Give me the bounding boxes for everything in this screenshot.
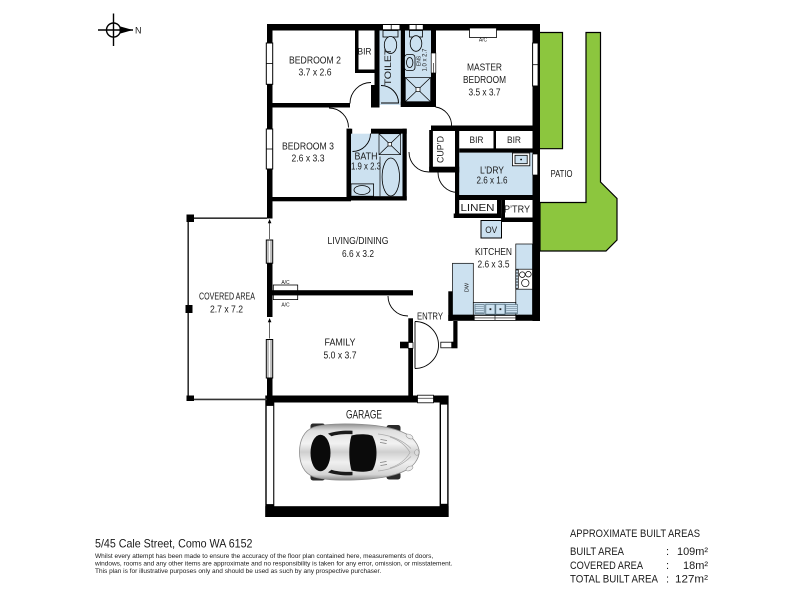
svg-text:5.0 x 3.7: 5.0 x 3.7 (324, 351, 357, 362)
svg-text:COVERED AREA: COVERED AREA (199, 292, 255, 303)
svg-text:BEDROOM: BEDROOM (463, 75, 506, 86)
svg-text:1.9 x 2.3: 1.9 x 2.3 (351, 162, 381, 173)
svg-text:2.6 x 3.3: 2.6 x 3.3 (292, 154, 325, 165)
svg-text:5/45 Cale Street, Como WA 6152: 5/45 Cale Street, Como WA 6152 (95, 537, 253, 551)
svg-text:1.0 x 2.7: 1.0 x 2.7 (423, 48, 429, 72)
svg-text:18m²: 18m² (683, 560, 708, 572)
svg-text:BEDROOM 2: BEDROOM 2 (289, 56, 341, 67)
svg-text:APPROXIMATE BUILT AREAS: APPROXIMATE BUILT AREAS (570, 528, 700, 540)
svg-text::: : (666, 546, 669, 558)
svg-text:windows, rooms and any other i: windows, rooms and any other items are a… (94, 561, 452, 568)
svg-text:LINEN: LINEN (461, 203, 495, 214)
svg-text:A/C: A/C (281, 303, 290, 309)
svg-text:DW: DW (465, 282, 471, 292)
svg-text:A/C: A/C (479, 38, 488, 44)
svg-text:BUILT AREA: BUILT AREA (570, 546, 625, 558)
svg-text:MASTER: MASTER (467, 63, 502, 74)
svg-text:PATIO: PATIO (551, 169, 573, 180)
svg-text:6.6 x 3.2: 6.6 x 3.2 (342, 249, 374, 260)
svg-text:2.7 x 7.2: 2.7 x 7.2 (210, 305, 243, 316)
svg-text:N: N (135, 26, 142, 36)
svg-text:2.6 x 1.6: 2.6 x 1.6 (477, 176, 508, 187)
svg-text:109m²: 109m² (677, 546, 708, 558)
svg-text:TOTAL BUILT AREA: TOTAL BUILT AREA (570, 574, 659, 586)
svg-text:This plan is for illustrative: This plan is for illustrative purposes o… (95, 568, 381, 575)
svg-text:KITCHEN: KITCHEN (475, 247, 512, 258)
svg-text:OV: OV (485, 225, 497, 235)
svg-text:2.6 x 3.5: 2.6 x 3.5 (478, 260, 510, 271)
svg-text:3.7 x 2.6: 3.7 x 2.6 (299, 68, 332, 79)
svg-text:FAMILY: FAMILY (325, 338, 356, 349)
svg-text:127m²: 127m² (675, 574, 708, 586)
svg-text:3.5 x 3.7: 3.5 x 3.7 (469, 88, 501, 99)
svg-text::: : (666, 560, 669, 572)
svg-text:TOILET: TOILET (383, 48, 393, 86)
svg-text:Whilst every attempt has been: Whilst every attempt has been made to en… (95, 553, 433, 560)
svg-text:BEDROOM 3: BEDROOM 3 (282, 142, 334, 153)
svg-text:ENTRY: ENTRY (417, 312, 443, 323)
svg-text::: : (666, 574, 669, 586)
svg-text:COVERED AREA: COVERED AREA (570, 560, 644, 572)
svg-text:A/C: A/C (281, 280, 290, 286)
svg-text:BIR: BIR (358, 47, 372, 58)
svg-text:BIR: BIR (507, 135, 521, 146)
svg-text:LIVING/DINING: LIVING/DINING (328, 236, 389, 247)
svg-text:BIR: BIR (470, 135, 484, 146)
svg-text:CUP’D: CUP’D (436, 136, 447, 163)
svg-text:P’TRY: P’TRY (504, 205, 530, 216)
svg-text:GARAGE: GARAGE (346, 408, 382, 422)
